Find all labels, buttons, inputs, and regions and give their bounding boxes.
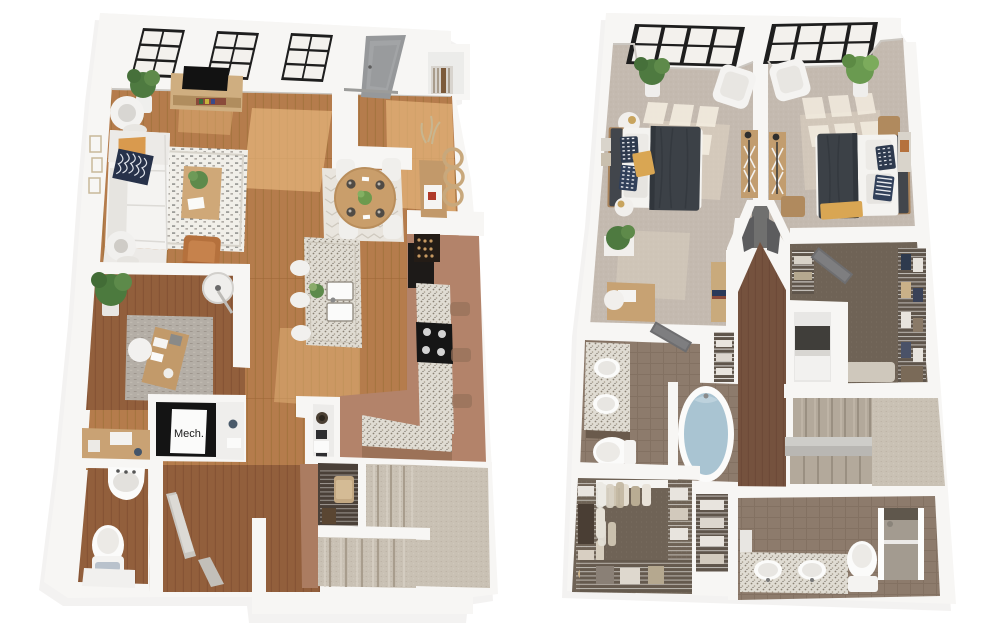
svg-text:Mech.: Mech.: [174, 428, 204, 440]
